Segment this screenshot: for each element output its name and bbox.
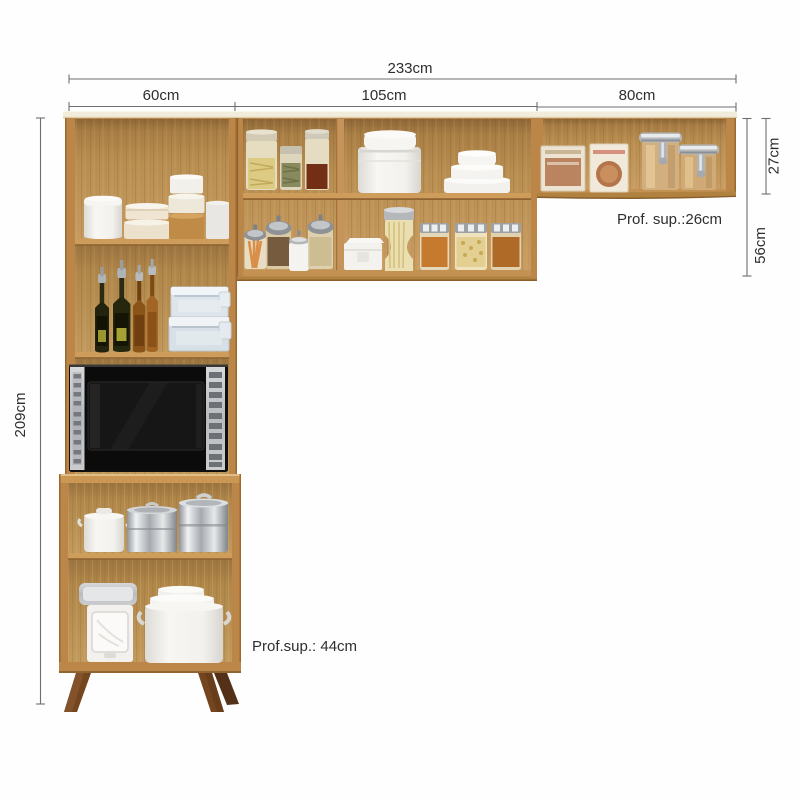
svg-text:60cm: 60cm (143, 87, 180, 104)
svg-text:Prof.sup.: 44cm: Prof.sup.: 44cm (252, 638, 357, 655)
svg-text:105cm: 105cm (361, 87, 406, 104)
svg-text:56cm: 56cm (752, 227, 769, 264)
svg-text:Prof. sup.:26cm: Prof. sup.:26cm (617, 211, 722, 228)
svg-text:80cm: 80cm (619, 87, 656, 104)
svg-text:27cm: 27cm (766, 138, 783, 175)
svg-text:233cm: 233cm (387, 60, 432, 77)
svg-text:209cm: 209cm (12, 392, 29, 437)
